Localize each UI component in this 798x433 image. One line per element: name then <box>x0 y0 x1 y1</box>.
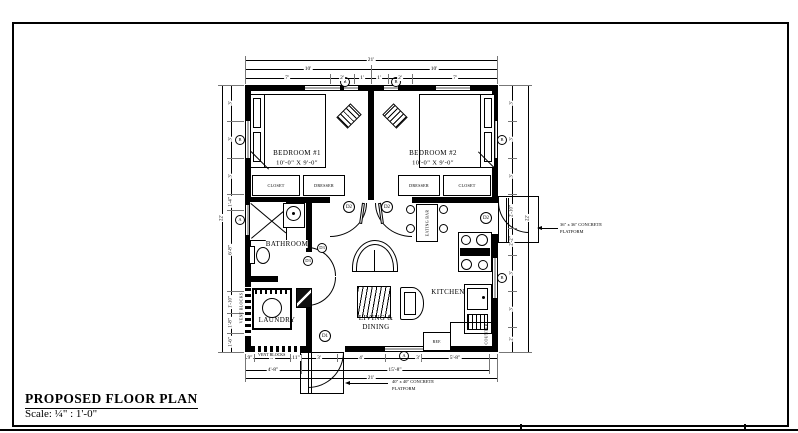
dresser-bedroom2: DRESSER <box>398 175 440 196</box>
ext-line <box>227 194 244 195</box>
titleblock-edge <box>0 429 798 431</box>
ext-line <box>227 158 244 159</box>
window-tag: B <box>235 135 245 145</box>
sheet-scale: Scale: ¼" : 1'-0" <box>25 408 97 420</box>
ext-line <box>218 85 244 86</box>
titleblock-tick <box>744 424 746 431</box>
ext-line <box>227 121 244 122</box>
dim-label: 7' <box>452 75 458 81</box>
titleblock-tick <box>520 424 522 431</box>
dim-label: 7' <box>284 75 290 81</box>
dim-label: 21' <box>367 57 376 63</box>
washer-controls <box>255 290 289 294</box>
dim-label: 2'-2" <box>510 235 515 247</box>
dim-label: 2'-10" <box>510 204 515 218</box>
dim-label: 1' <box>376 75 382 81</box>
door-tag: D2 <box>480 212 492 224</box>
dim-label: 3' <box>229 173 234 178</box>
dim-label: 2' <box>510 336 515 341</box>
dim-label: 3' <box>510 306 515 311</box>
bar-chair <box>439 224 448 233</box>
ext-line <box>499 352 532 353</box>
ext-line <box>508 121 517 122</box>
dim-label: 1' <box>359 75 365 81</box>
faucet-dot <box>292 212 295 215</box>
eating-bar-label: EATING BAR <box>425 210 430 237</box>
dim-label: 3' <box>229 136 234 141</box>
ext-line <box>218 352 244 353</box>
dim-line <box>245 370 490 371</box>
ext-line <box>508 327 517 328</box>
armchair-cushion <box>404 292 416 315</box>
dim-label: 6'-8" <box>229 244 234 256</box>
door-tag: D2 <box>343 201 355 213</box>
window-tag: B <box>497 273 507 283</box>
ext-line <box>421 354 422 362</box>
vent-blocks-strip <box>245 287 251 339</box>
ext-line <box>508 255 517 256</box>
pillow <box>253 98 261 128</box>
dim-label: 22' <box>526 214 531 222</box>
closet-label: CLOSET <box>267 183 284 188</box>
ext-line <box>508 158 517 159</box>
ext-line <box>508 194 517 195</box>
ext-line <box>497 354 498 382</box>
ext-line <box>330 74 331 84</box>
dim-label: 3' <box>316 355 322 361</box>
water-heater <box>296 288 312 308</box>
burner <box>478 260 488 270</box>
platform-note-right-2: PLATFORM <box>560 229 584 235</box>
room-label-bedroom1: BEDROOM #1 <box>273 149 321 157</box>
leader-line <box>350 383 388 384</box>
counter-edge <box>450 322 451 332</box>
ext-line <box>227 333 244 334</box>
toilet-tank <box>249 246 255 264</box>
dim-label: 3' <box>510 173 515 178</box>
dim-label: 3' <box>510 100 515 105</box>
stove-control-band <box>460 248 490 256</box>
ext-line <box>227 210 244 211</box>
leader-arrow <box>345 381 350 385</box>
dim-label: 1'-10" <box>229 295 234 309</box>
ext-line <box>245 56 246 84</box>
ext-line <box>388 74 389 84</box>
dim-line <box>512 85 513 352</box>
closet-bedroom2: CLOSET <box>443 175 491 196</box>
window-tag: B <box>497 135 507 145</box>
burner <box>461 235 471 245</box>
room-label-kitchen: KITCHEN <box>431 288 465 296</box>
loveseat-line <box>374 250 375 271</box>
wall-bathroom-bottom <box>245 276 278 282</box>
window <box>436 85 470 91</box>
faucet-dot <box>482 296 485 299</box>
dim-label: 2' <box>339 75 345 81</box>
dim-label: 1'-4" <box>229 196 234 208</box>
platform-note-bottom-1: 40" x 40" CONCRETE <box>392 379 434 385</box>
dim-line <box>231 85 232 352</box>
toilet-bowl <box>256 247 270 264</box>
room-label-bedroom2: BEDROOM #2 <box>409 149 457 157</box>
dim-label: 5'-8" <box>449 355 462 361</box>
ext-line <box>337 354 338 362</box>
door-tag: D1 <box>319 330 331 342</box>
bar-chair <box>406 205 415 214</box>
refrigerator: REF. <box>423 332 451 351</box>
dim-label: 15'-8" <box>387 367 402 373</box>
ext-line <box>508 291 517 292</box>
dim-label: 10' <box>430 66 439 72</box>
ext-line <box>499 85 532 86</box>
bar-chair <box>439 205 448 214</box>
dresser-bedroom1: DRESSER <box>303 175 345 196</box>
vent-blocks-label-bottom: VENT BLOCKS <box>258 352 285 358</box>
ext-line <box>489 354 490 374</box>
dim-label: 1'-6" <box>229 336 234 348</box>
ref-label: REF. <box>433 339 442 344</box>
room-size-bedroom2: 10'-0" X 9'-0" <box>412 160 454 167</box>
dim-label: 4'-8" <box>267 367 280 373</box>
room-label-bathroom: BATHROOM <box>266 240 308 248</box>
ext-line <box>508 228 517 229</box>
ext-line <box>385 354 386 362</box>
burner <box>461 259 472 270</box>
wall-bedroom-party <box>368 85 374 200</box>
burner <box>476 234 488 246</box>
kitchen-sink-basin <box>467 288 488 310</box>
dim-label: 3' <box>229 100 234 105</box>
ext-line <box>354 74 355 84</box>
dim-label: 10' <box>304 66 313 72</box>
ext-line <box>371 65 372 84</box>
sheet-title: PROPOSED FLOOR PLAN <box>25 391 198 409</box>
door-tag: D3 <box>303 256 313 266</box>
ext-line <box>412 74 413 84</box>
bed-line <box>264 95 265 167</box>
room-label-laundry: LAUNDRY <box>259 316 296 324</box>
window-tag: A <box>235 215 245 225</box>
dim-label: 21' <box>367 375 376 381</box>
bed-line <box>480 95 481 167</box>
vent-blocks-label-left: VENT BLOCKS <box>239 293 244 324</box>
window-tag: A <box>399 351 409 361</box>
room-label-living-2: DINING <box>362 323 389 331</box>
door-tag: D2 <box>381 201 393 213</box>
ext-line <box>497 56 498 84</box>
ext-line <box>301 354 302 374</box>
pillow <box>484 98 492 128</box>
wall-laundry-right <box>306 306 312 352</box>
washer-drum <box>262 298 282 318</box>
dim-label: 11" <box>291 355 301 361</box>
dim-label: 3' <box>415 355 421 361</box>
ext-line <box>254 354 255 362</box>
dim-label: 22' <box>220 214 225 222</box>
dim-label: 9" <box>247 355 254 361</box>
window <box>305 85 340 91</box>
platform-note-bottom-2: PLATFORM <box>392 386 416 392</box>
dresser-label: DRESSER <box>314 183 334 188</box>
platform-note-right-1: 36" x 36" CONCRETE <box>560 222 602 228</box>
dim-label: 2' <box>397 75 403 81</box>
wall-hall-right <box>412 197 498 203</box>
bar-chair <box>406 224 415 233</box>
dim-label: 1'-8" <box>229 317 234 329</box>
room-label-living-1: LIVING & <box>359 314 394 322</box>
leader-arrow <box>537 226 542 230</box>
dim-label: 3' <box>510 270 515 275</box>
room-size-bedroom1: 10'-0" X 9'-0" <box>276 160 318 167</box>
drawing-sheet: CLOSET DRESSER DRESSER CLOSET EATING BAR… <box>0 0 798 433</box>
closet-bedroom1: CLOSET <box>252 175 300 196</box>
leader-line <box>542 228 558 229</box>
closet-label: CLOSET <box>458 183 475 188</box>
counter-label: COUNTER <box>484 324 489 345</box>
dim-label: 4' <box>358 355 364 361</box>
door-tag: D3 <box>317 243 327 253</box>
dim-label: 3' <box>510 136 515 141</box>
dresser-label: DRESSER <box>409 183 429 188</box>
